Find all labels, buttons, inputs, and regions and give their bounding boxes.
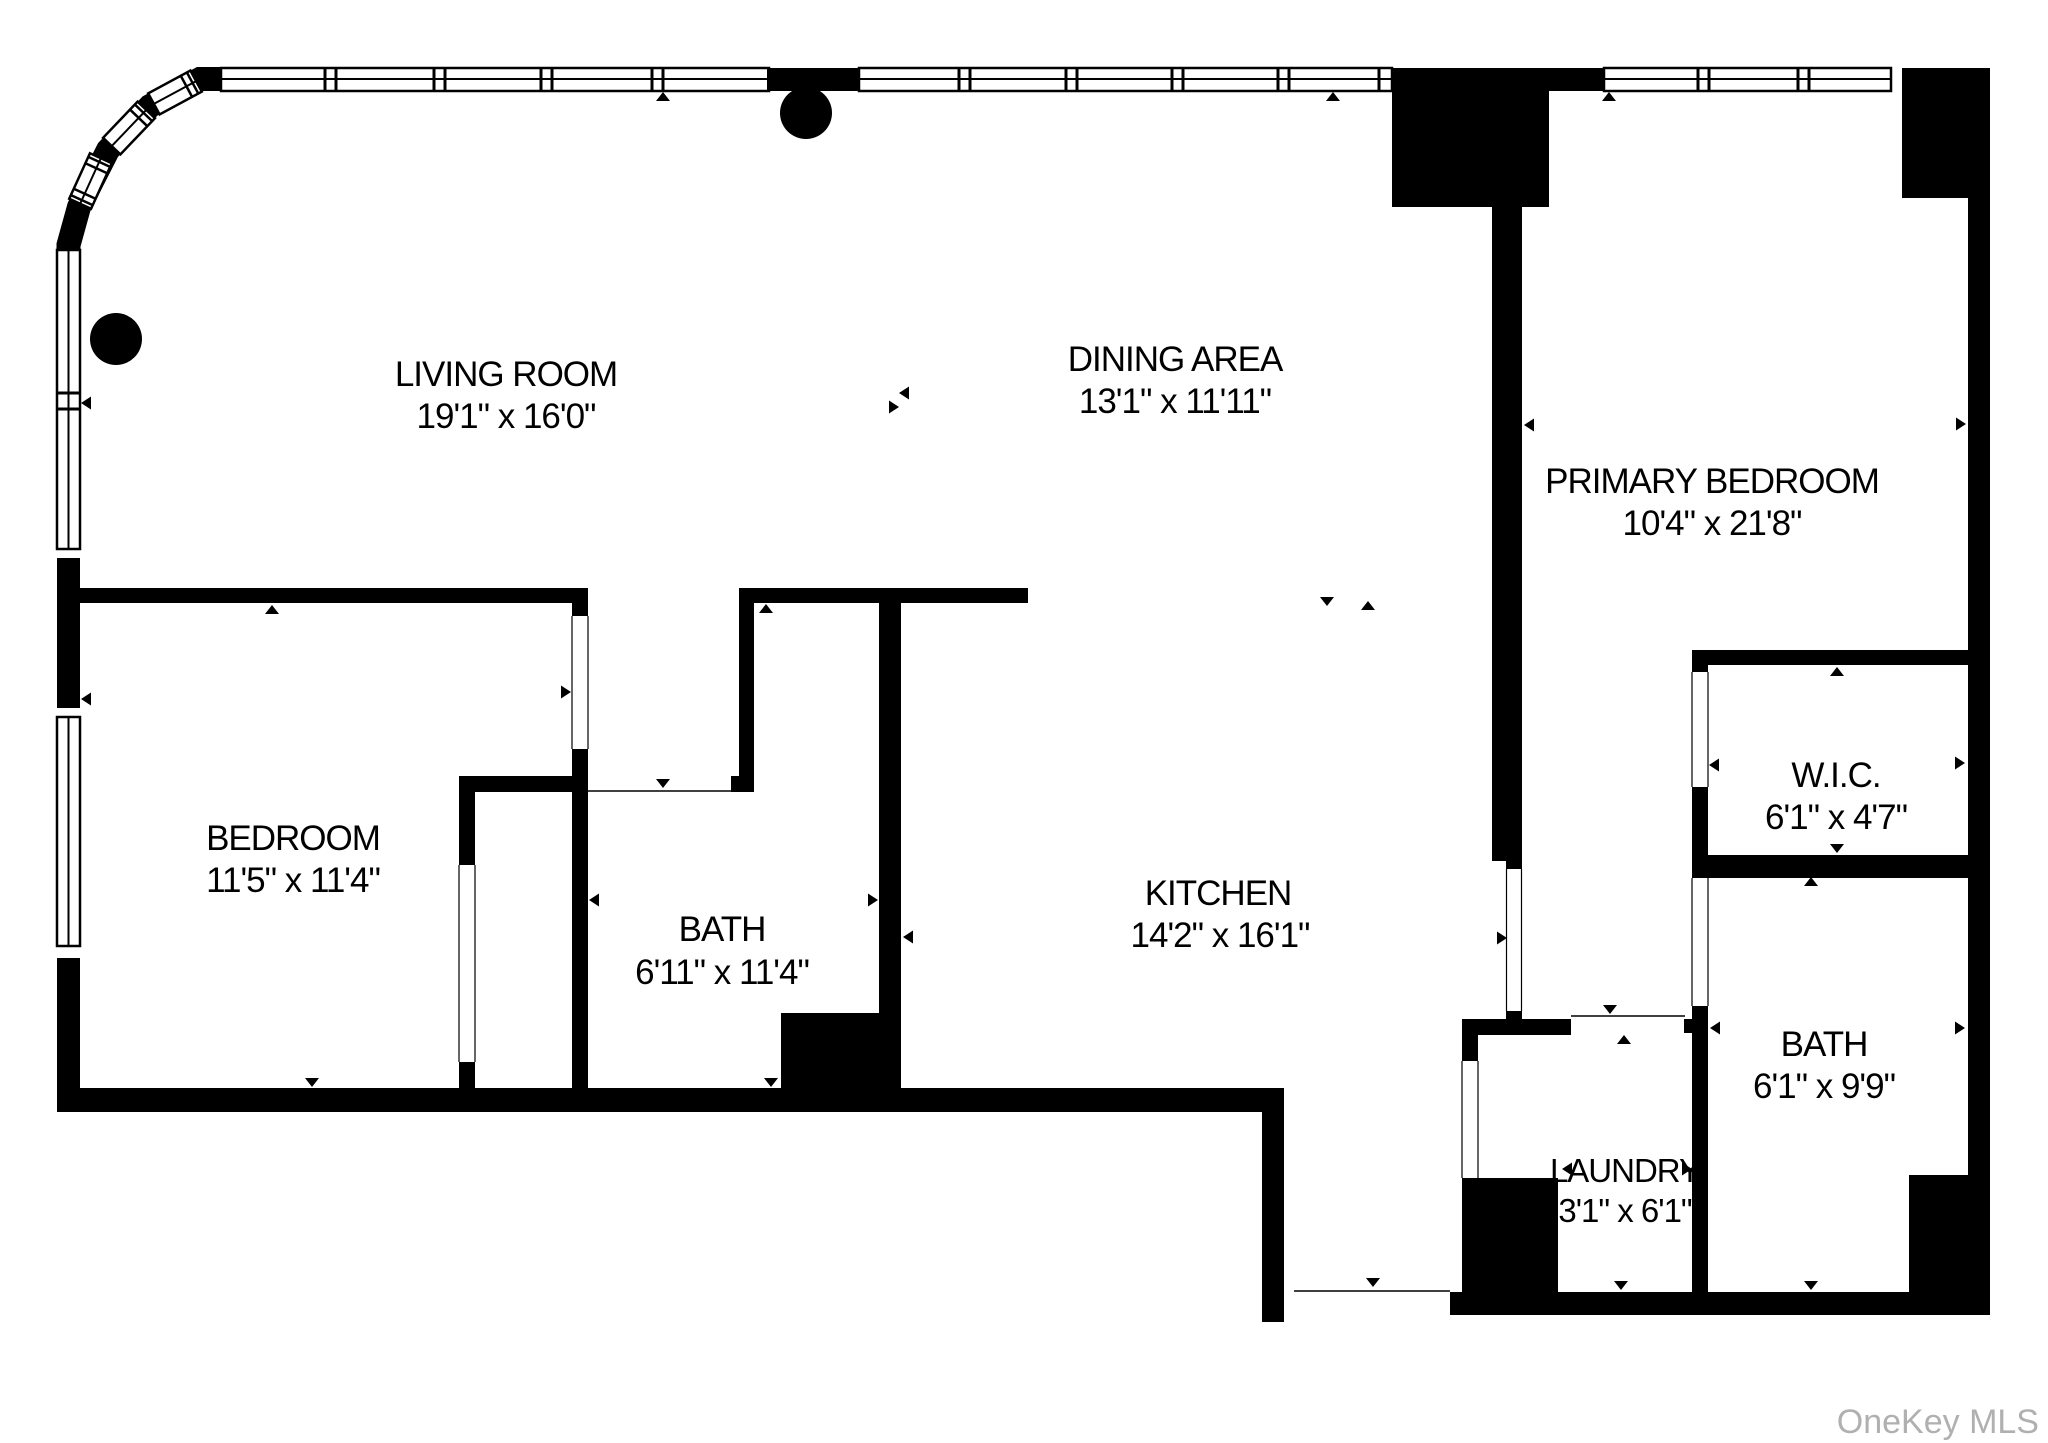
svg-text:PRIMARY BEDROOM: PRIMARY BEDROOM bbox=[1545, 462, 1879, 501]
svg-text:OneKey MLS: OneKey MLS bbox=[1837, 1403, 2039, 1441]
svg-text:LIVING ROOM: LIVING ROOM bbox=[395, 355, 617, 394]
svg-text:11'5" x 11'4": 11'5" x 11'4" bbox=[206, 861, 380, 900]
svg-text:LAUNDRY: LAUNDRY bbox=[1550, 1152, 1701, 1189]
svg-text:6'1" x 4'7": 6'1" x 4'7" bbox=[1765, 798, 1907, 837]
svg-text:BATH: BATH bbox=[1781, 1025, 1868, 1064]
svg-text:KITCHEN: KITCHEN bbox=[1145, 874, 1292, 913]
svg-text:13'1" x 11'11": 13'1" x 11'11" bbox=[1079, 382, 1271, 421]
svg-text:6'1" x 9'9": 6'1" x 9'9" bbox=[1753, 1067, 1895, 1106]
svg-text:6'11" x 11'4": 6'11" x 11'4" bbox=[635, 953, 809, 992]
svg-text:3'1" x 6'1": 3'1" x 6'1" bbox=[1558, 1192, 1692, 1229]
svg-text:14'2" x 16'1": 14'2" x 16'1" bbox=[1131, 916, 1310, 955]
svg-text:W.I.C.: W.I.C. bbox=[1791, 756, 1880, 795]
svg-text:BEDROOM: BEDROOM bbox=[206, 819, 380, 858]
svg-text:BATH: BATH bbox=[679, 910, 766, 949]
svg-text:DINING AREA: DINING AREA bbox=[1068, 340, 1284, 379]
svg-text:10'4" x 21'8": 10'4" x 21'8" bbox=[1623, 504, 1802, 543]
svg-text:19'1" x 16'0": 19'1" x 16'0" bbox=[417, 397, 596, 436]
